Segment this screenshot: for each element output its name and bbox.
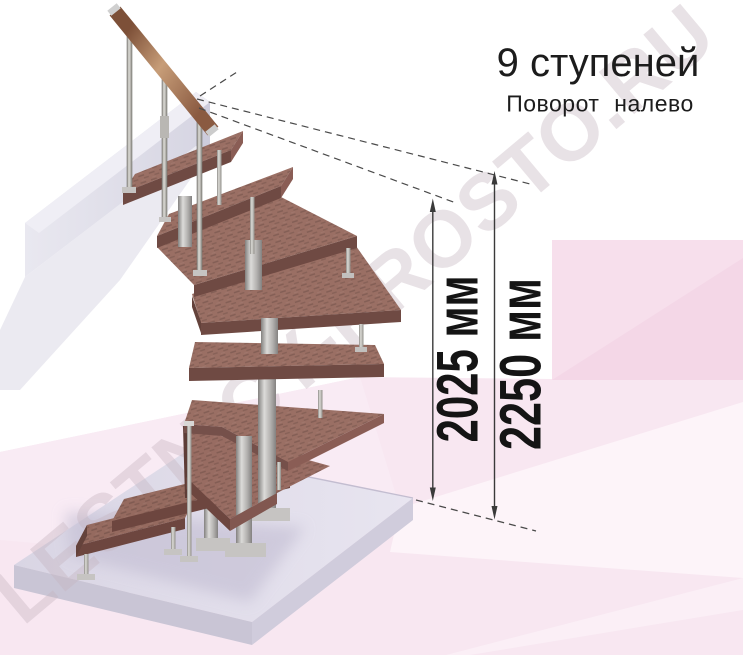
svg-text:2025 мм: 2025 мм [426, 276, 491, 443]
svg-text:2250 мм: 2250 мм [489, 278, 554, 450]
svg-text:9 ступеней: 9 ступеней [497, 41, 700, 85]
svg-text:Поворот налево: Поворот налево [506, 91, 694, 117]
